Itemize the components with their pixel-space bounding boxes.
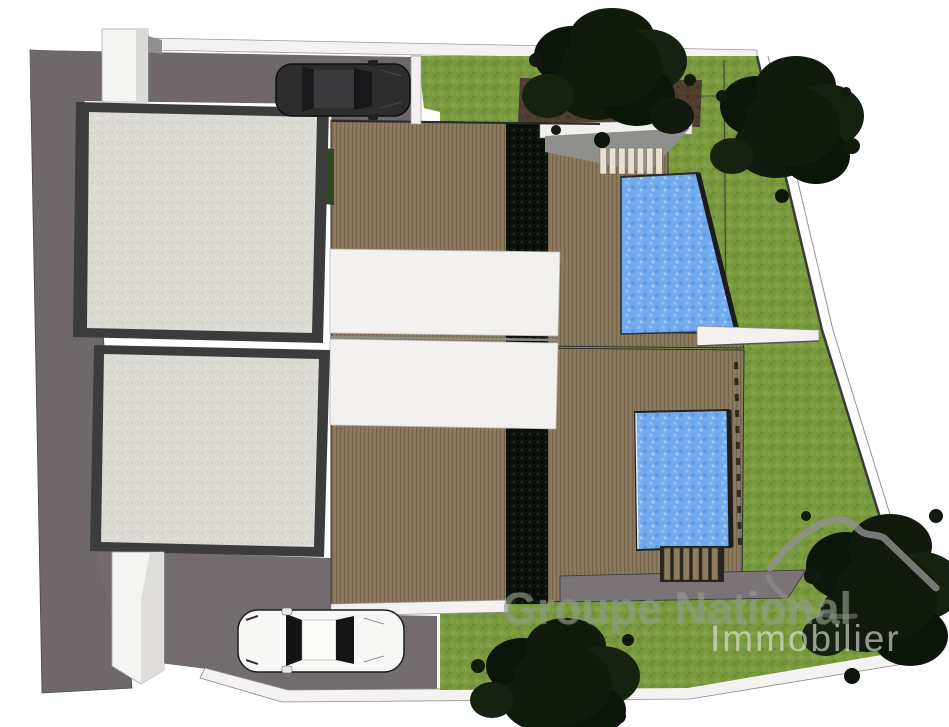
driveway-lawn-post: [411, 56, 421, 124]
canopy-lower: [330, 339, 558, 429]
building-a-roof: [87, 112, 317, 333]
building-b-roof: [101, 354, 319, 547]
pool-lower-coping: [729, 410, 731, 547]
stairs-upper: [600, 148, 662, 174]
pillar-bottom: [112, 552, 164, 684]
black-car: [276, 60, 410, 120]
stairs-lower: [660, 546, 724, 582]
canopy-upper: [330, 249, 560, 336]
site-plan-render: Groupe National Immobilier: [0, 0, 949, 727]
watermark-brand-line2: Immobilier: [710, 618, 901, 660]
pool-lower: [635, 410, 731, 550]
white-car: [238, 608, 404, 673]
